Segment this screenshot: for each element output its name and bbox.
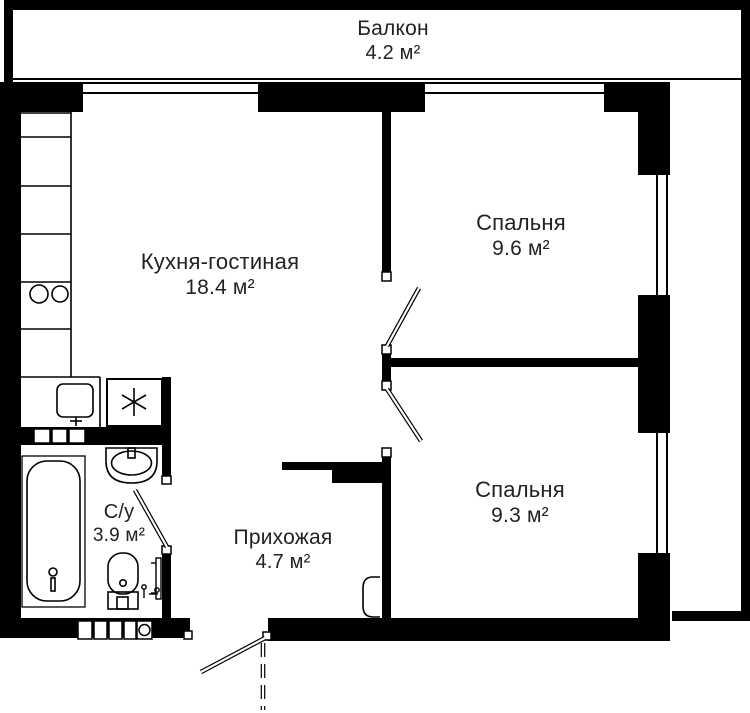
door-leaves [135,288,421,710]
washbasin-tap [128,448,135,458]
door-jamb [382,448,391,457]
walls [0,82,670,641]
toilet-icon [108,553,138,609]
washbasin-icon [106,448,157,483]
door-bathroom [135,490,167,547]
window-bedroom-top-glazing [656,175,658,295]
bathtub-overflow [51,578,55,591]
bedroom-divider-wall [390,358,638,367]
door-jamb [382,345,391,354]
window-top-right-glazing [425,92,604,94]
door-jamb [382,381,391,390]
vent-shaft [52,429,67,443]
door-bedroom-top [387,288,419,346]
partition-wall-junction [382,353,391,382]
balcony-rail-left [4,0,13,82]
vent-shaft [34,429,50,443]
entry-door [201,638,265,710]
vent-shaft [109,621,122,639]
vent-shaft [94,621,107,639]
bathroom-right-wall-upper [162,377,171,477]
vent-shaft [69,429,85,443]
vent-shaft [124,621,136,639]
hallway-top-wall-thick [332,462,382,483]
towel-rail-icon [151,558,161,599]
right-wall-lower [638,553,670,623]
hallway-top-wall-thin [282,462,334,470]
door-jamb [184,631,192,639]
refrigerator-icon [107,379,162,426]
bathroom-fixtures [22,448,161,609]
partition-wall-lower [382,456,391,618]
side-balcony-bottom-wall [672,611,750,621]
kitchen-counter [21,112,100,427]
washbasin-bowl [112,451,152,475]
door-bedroom-bottom [387,389,421,441]
kitchen-sink-icon [57,384,93,426]
right-wall-upper [638,112,670,175]
hob-icon [30,285,68,303]
window-bedroom-bottom-glazing [656,433,658,553]
bathtub-icon [27,461,80,601]
balcony-rail-right [741,0,750,621]
top-wall-mid [258,82,425,112]
kitchen-fixtures [21,112,162,427]
bottom-wall-main [268,618,670,641]
door-jamb [162,476,171,484]
door-jambs [162,272,391,640]
floor-plan: Балкон 4.2 м² Кухня-гостиная 18.4 м² Спа… [0,0,750,713]
partition-wall-upper [382,112,391,273]
top-wall-right [604,82,670,112]
vent-shaft [78,621,92,639]
bathroom-right-wall-lower [162,554,171,618]
floor-plan-drawing [0,0,750,713]
balcony-rail-top [4,0,750,10]
bathtub-enclosure [22,456,85,607]
window-top-left-glazing [83,92,258,94]
electric-panel-icon [363,577,380,617]
left-wall [0,82,21,638]
bathtub-drain [49,568,57,576]
right-wall-outer-line [666,82,668,623]
balcony-floor-line [13,78,742,80]
door-jamb [382,272,391,281]
right-wall-mid [638,295,670,433]
